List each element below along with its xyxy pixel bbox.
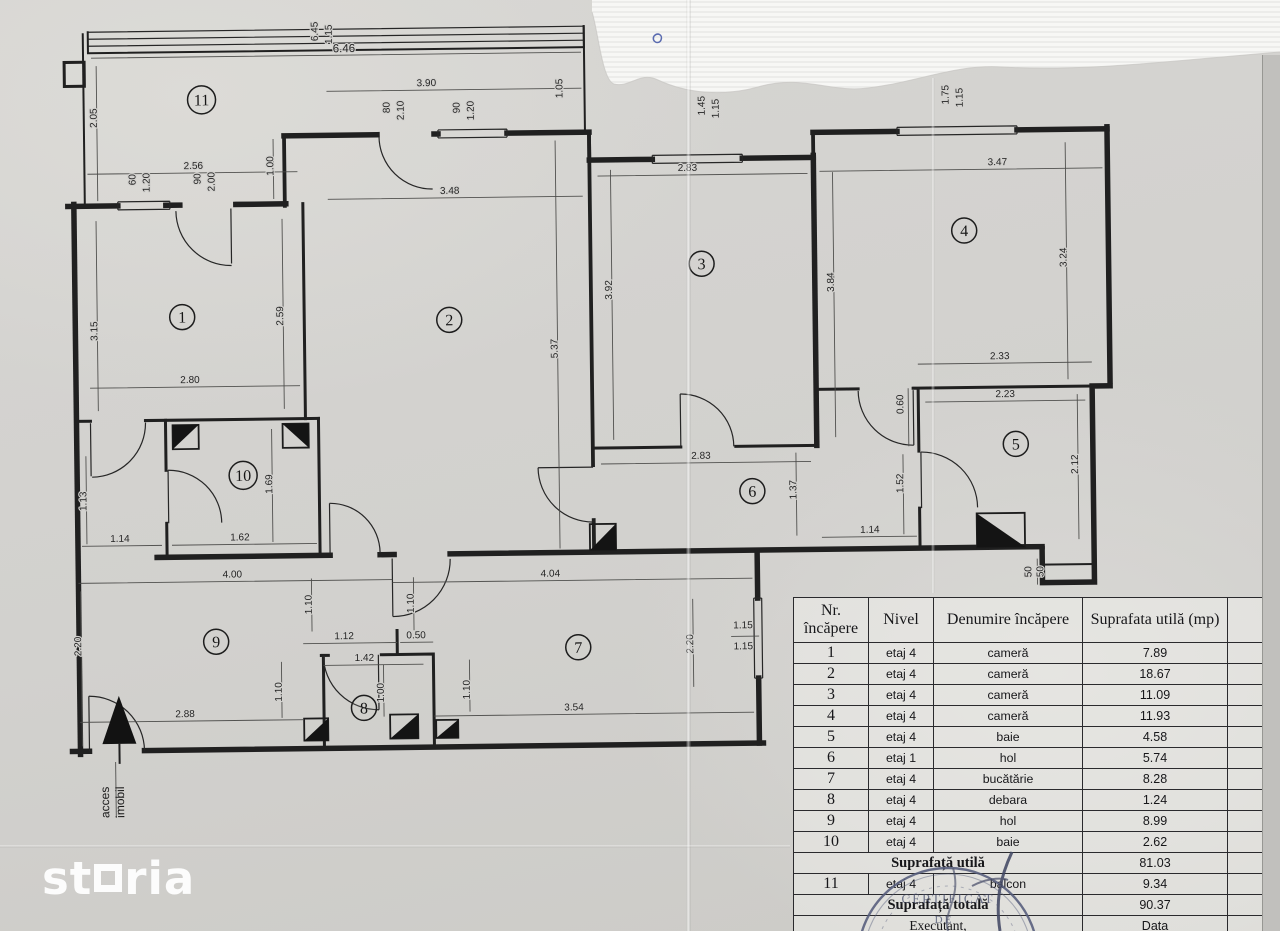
- dimension-label: 1.15: [324, 24, 335, 44]
- dimension-label: 1.45: [697, 95, 708, 115]
- dimension-label: 2.83: [678, 163, 698, 174]
- dimension-label: 2.59: [275, 306, 286, 326]
- dimension-label: 0.50: [406, 630, 426, 641]
- cell: [1228, 790, 1263, 811]
- cell: 3: [794, 685, 869, 706]
- paper-edge: [1262, 55, 1280, 931]
- room-number: 9: [212, 634, 220, 651]
- room-number-circle: [689, 251, 714, 276]
- dimension-label: 90: [452, 102, 463, 114]
- dimension-label: 50: [1035, 566, 1046, 578]
- dimension-label: 2.20: [685, 634, 696, 654]
- cell: 2.62: [1083, 832, 1228, 853]
- dimension-label: 60: [127, 174, 138, 186]
- room-number-circle: [1003, 431, 1028, 456]
- dimension-label: 1.14: [860, 525, 880, 536]
- dimension-label: 1.10: [304, 594, 315, 614]
- dimension-label: 2.10: [396, 100, 407, 120]
- cell: etaj 4: [869, 706, 934, 727]
- room-number-circle: [740, 478, 765, 503]
- room-number: 10: [235, 468, 251, 485]
- dimension-label: 90: [192, 173, 203, 185]
- dimension-label: 3.24: [1058, 247, 1069, 267]
- cell: 7.89: [1083, 643, 1228, 664]
- room-number-circle: [351, 695, 376, 720]
- cell: 4: [794, 706, 869, 727]
- header-cutoff: [1228, 598, 1263, 643]
- total-label: Suprafață totală: [794, 895, 1083, 916]
- cell: 8: [794, 790, 869, 811]
- cell: 18.67: [1083, 664, 1228, 685]
- table-row: 3etaj 4cameră11.09: [794, 685, 1263, 706]
- executant-label: Executant,: [794, 916, 1083, 931]
- dimension-label: 3.48: [440, 186, 460, 197]
- dimension-label: 1.15: [711, 98, 722, 118]
- dimension-label: 1.14: [110, 534, 130, 545]
- cell: 11: [794, 874, 869, 895]
- room-number: 1: [178, 310, 186, 327]
- watermark-text: st: [42, 852, 92, 905]
- dimension-label: 2.12: [1070, 454, 1081, 474]
- cell: 1.24: [1083, 790, 1228, 811]
- table-row: 7etaj 4bucătărie8.28: [794, 769, 1263, 790]
- dimension-label: 1.20: [141, 172, 152, 192]
- area-table: Nr. încăpere Nivel Denumire încăpere Sup…: [793, 597, 1262, 931]
- dimension-label: 1.62: [230, 532, 250, 543]
- dimension-label: 2.20: [73, 636, 84, 656]
- dimension-label: 1.75: [940, 85, 951, 105]
- dimension-label: 1.00: [265, 156, 276, 176]
- cell: [1228, 727, 1263, 748]
- room-number-circle: [229, 461, 257, 489]
- room-number: 7: [574, 640, 582, 657]
- cell: 9.34: [1083, 874, 1228, 895]
- paper-fold: [686, 0, 691, 931]
- table-row: Suprafață totală90.37: [794, 895, 1263, 916]
- room-area-table: Nr. încăpere Nivel Denumire încăpere Sup…: [793, 597, 1263, 931]
- cell: [1228, 643, 1263, 664]
- dimension-label: 1.15: [954, 87, 965, 107]
- room-number: 6: [748, 484, 756, 501]
- table-row: 4etaj 4cameră11.93: [794, 706, 1263, 727]
- dimension-label: 1.15: [733, 641, 753, 652]
- table-row: Suprafață utilă81.03: [794, 853, 1263, 874]
- floor-plan-photo: Nr. încăpere Nivel Denumire încăpere Sup…: [0, 0, 1280, 931]
- room-number: 5: [1012, 436, 1020, 453]
- cell: etaj 4: [869, 643, 934, 664]
- table-row: 2etaj 4cameră18.67: [794, 664, 1263, 685]
- cell: 4.58: [1083, 727, 1228, 748]
- cell: 5: [794, 727, 869, 748]
- cell: balcon: [934, 874, 1083, 895]
- dimension-label: 2.88: [175, 709, 195, 720]
- dimension-label: 1.37: [788, 479, 799, 499]
- cell: etaj 4: [869, 727, 934, 748]
- dimension-label: 3.15: [89, 321, 100, 341]
- cell: cameră: [934, 664, 1083, 685]
- table-row: 1etaj 4cameră7.89: [794, 643, 1263, 664]
- room-number-circle: [952, 218, 977, 243]
- room-number-circle: [187, 86, 215, 114]
- cell: [1228, 685, 1263, 706]
- ink-mark: [653, 34, 661, 42]
- dimension-label: 1.52: [895, 473, 906, 493]
- watermark-square-o-icon: [94, 864, 122, 892]
- torn-paper-region: [592, 0, 1280, 93]
- dimension-label: 3.84: [826, 272, 837, 292]
- cell: 5.74: [1083, 748, 1228, 769]
- access-label: imobil: [113, 786, 127, 818]
- cell: hol: [934, 748, 1083, 769]
- dimension-label: 3.90: [417, 78, 437, 89]
- room-number: 4: [960, 223, 968, 240]
- dimension-label: 1.42: [355, 653, 375, 664]
- cell: [1228, 874, 1263, 895]
- dimension-label: 6.46: [333, 43, 356, 55]
- table-row: 9etaj 4hol8.99: [794, 811, 1263, 832]
- cell: 8.28: [1083, 769, 1228, 790]
- table-row: 10etaj 4baie2.62: [794, 832, 1263, 853]
- cell: baie: [934, 832, 1083, 853]
- total-value: 90.37: [1083, 895, 1228, 916]
- dimension-label: 5.37: [549, 338, 560, 358]
- dimension-label: 6.45: [310, 21, 321, 41]
- dimension-label: 2.23: [995, 389, 1015, 400]
- cell: 10: [794, 832, 869, 853]
- dimension-label: 2.83: [691, 451, 711, 462]
- data-label: Data: [1083, 916, 1228, 931]
- cell: hol: [934, 811, 1083, 832]
- cell: [1228, 664, 1263, 685]
- cell: etaj 1: [869, 748, 934, 769]
- dimension-label: 50: [1023, 566, 1034, 578]
- access-arrow-icon: [102, 696, 137, 744]
- cell: debara: [934, 790, 1083, 811]
- cell: etaj 4: [869, 874, 934, 895]
- storia-watermark: stria: [42, 852, 195, 905]
- dimension-label: 1.05: [554, 78, 565, 98]
- subtotal-value: 81.03: [1083, 853, 1228, 874]
- dimension-label: 4.00: [223, 569, 243, 580]
- header-room-name: Denumire încăpere: [934, 598, 1083, 643]
- cell: etaj 4: [869, 790, 934, 811]
- cell: etaj 4: [869, 811, 934, 832]
- room-number-circle: [566, 635, 591, 660]
- cell: 2: [794, 664, 869, 685]
- dimension-label: 3.92: [604, 280, 615, 300]
- dimension-label: 1.10: [462, 679, 473, 699]
- watermark-text: ria: [124, 852, 195, 905]
- dimension-label: 3.54: [564, 702, 584, 713]
- room-number: 2: [445, 312, 453, 329]
- cell: [1228, 748, 1263, 769]
- cell: bucătărie: [934, 769, 1083, 790]
- dimension-label: 1.10: [274, 682, 285, 702]
- dimension-label: 0.60: [895, 394, 906, 414]
- cell: etaj 4: [869, 664, 934, 685]
- room-number: 11: [194, 92, 210, 109]
- cell: 1: [794, 643, 869, 664]
- subtotal-label: Suprafață utilă: [794, 853, 1083, 874]
- paper-fold: [931, 78, 935, 593]
- header-room-number: Nr. încăpere: [794, 598, 869, 643]
- dimension-label: 80: [382, 102, 393, 114]
- cell: cameră: [934, 706, 1083, 727]
- room-number-circle: [437, 307, 462, 332]
- room-number-circle: [170, 304, 195, 329]
- room-number: 8: [360, 700, 368, 717]
- table-row: 6etaj 1hol5.74: [794, 748, 1263, 769]
- table-row: Executant,Data: [794, 916, 1263, 931]
- cell: [1228, 853, 1263, 874]
- room-number: 3: [697, 256, 705, 273]
- cell: [1228, 895, 1263, 916]
- dimension-label: 4.04: [541, 568, 561, 579]
- dimension-label: 1.10: [406, 593, 417, 613]
- dimension-label: 2.56: [184, 161, 204, 172]
- dimension-label: 1.00: [376, 682, 387, 702]
- dimension-label: 3.47: [988, 157, 1008, 168]
- dimension-label: 2.00: [206, 171, 217, 191]
- cell: 11.93: [1083, 706, 1228, 727]
- cell: 9: [794, 811, 869, 832]
- cell: [1228, 769, 1263, 790]
- table-row: 8etaj 4debara1.24: [794, 790, 1263, 811]
- cell: etaj 4: [869, 685, 934, 706]
- dimension-label: 1.20: [466, 100, 477, 120]
- cell: [1228, 916, 1263, 931]
- cell: 6: [794, 748, 869, 769]
- dimension-label: 1.15: [733, 620, 753, 631]
- cell: 8.99: [1083, 811, 1228, 832]
- dimension-label: 1.69: [264, 474, 275, 494]
- cell: [1228, 811, 1263, 832]
- table-row: 11etaj 4balcon9.34: [794, 874, 1263, 895]
- table-header-row: Nr. încăpere Nivel Denumire încăpere Sup…: [794, 598, 1263, 643]
- building-access: accesimobil: [97, 696, 137, 818]
- header-level: Nivel: [869, 598, 934, 643]
- paper-fold: [0, 845, 790, 848]
- dimension-label: 1.13: [78, 491, 89, 511]
- room-number-circle: [204, 629, 229, 654]
- dimension-label: 2.05: [89, 108, 100, 128]
- dimension-label: 2.33: [990, 351, 1010, 362]
- header-area: Suprafata utilă (mp): [1083, 598, 1228, 643]
- access-label: acces: [98, 787, 112, 819]
- cell: cameră: [934, 685, 1083, 706]
- cell: 7: [794, 769, 869, 790]
- table-row: 5etaj 4baie4.58: [794, 727, 1263, 748]
- cell: etaj 4: [869, 769, 934, 790]
- cell: baie: [934, 727, 1083, 748]
- cell: [1228, 706, 1263, 727]
- cell: [1228, 832, 1263, 853]
- dimension-label: 1.12: [334, 631, 354, 642]
- cell: etaj 4: [869, 832, 934, 853]
- cell: cameră: [934, 643, 1083, 664]
- dimension-label: 2.80: [180, 375, 200, 386]
- cell: 11.09: [1083, 685, 1228, 706]
